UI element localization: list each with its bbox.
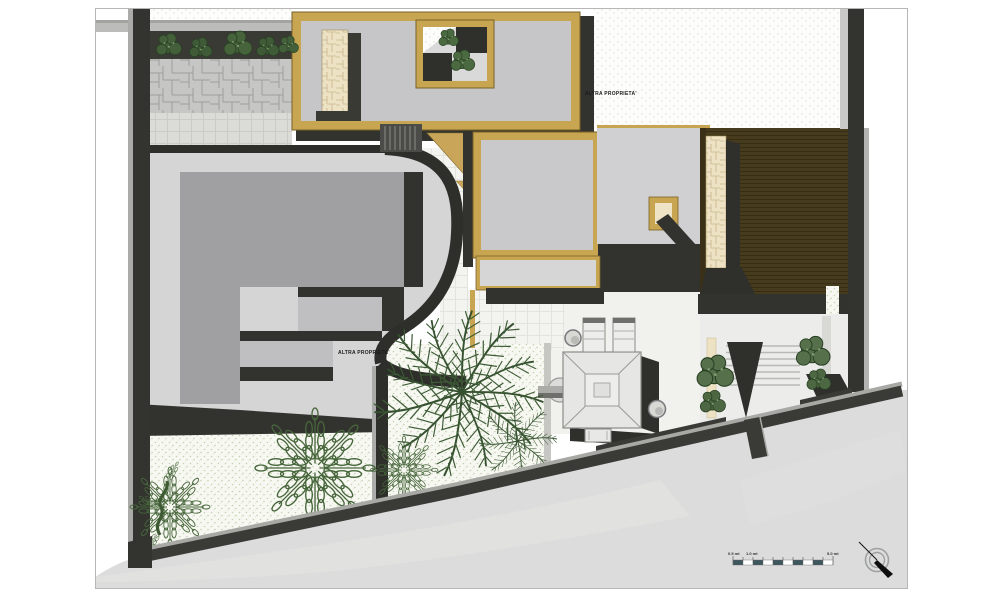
scale-tick-label-second: 1.0 mt: [746, 551, 758, 556]
stone-strip-deck: [706, 136, 726, 268]
flagstone-court: [150, 59, 292, 113]
courtyard-shadow-tr: [456, 27, 487, 53]
scale-tick-label-first: 0.5 mt: [728, 551, 740, 556]
stone-strip-top: [322, 30, 348, 118]
stairs-top-treads: [385, 126, 415, 150]
left-wall-edge: [128, 9, 133, 560]
stone-strip-shadow: [348, 33, 361, 121]
garden-divider-wall: [376, 366, 388, 516]
sun-lounger-2: [613, 318, 635, 352]
building-mid-roof: [481, 140, 593, 250]
scale-tick-label-last: 5.0 mt: [827, 551, 839, 556]
site-plan-canvas: ALTRA PROPRIETA' ALTRA PROPRIETA' 0.5 mt…: [0, 0, 1000, 600]
right-wall: [848, 9, 864, 392]
bench-bar: [538, 386, 564, 393]
paved-strip-top-left: [150, 113, 292, 149]
gravel-strip-top-left: [140, 9, 292, 21]
pavilion-shadow-right: [641, 356, 659, 434]
terrace-mid-floor: [480, 260, 596, 286]
terrace-mid-shadow: [486, 288, 604, 304]
right-wall-outer-edge: [864, 128, 869, 392]
other-property-label-left: ALTRA PROPRIETA': [338, 350, 390, 356]
terrace-side-shadow: [404, 172, 423, 287]
sun-lounger-1: [583, 318, 605, 352]
right-wall-inner-strip: [840, 9, 848, 129]
top-wall-edge: [96, 20, 292, 23]
stone-strip-deck-shadow: [726, 140, 740, 268]
left-wall: [133, 9, 150, 560]
site-plan-drawing: [0, 0, 1000, 600]
garden-divider-edge: [372, 366, 376, 516]
boundary-left: [128, 9, 150, 560]
deck-edge: [700, 128, 706, 296]
building-mid-shadow-left: [463, 131, 473, 267]
terrace-step-shadow: [298, 287, 404, 297]
terrace-step-shadow: [240, 331, 382, 341]
stone-strip-shadow-bottom: [316, 111, 354, 121]
terrace-step-2: [240, 341, 333, 367]
roof-lower-shadow-block: [598, 244, 706, 292]
other-property-label-top: ALTRA PROPRIETA': [585, 91, 637, 97]
building-top-shadow-right: [580, 16, 594, 134]
courtyard-shadow-bl: [423, 53, 452, 81]
stairs-top: [380, 124, 422, 152]
pavilion-roof-apex: [594, 383, 610, 397]
terrace-step-1: [298, 297, 382, 331]
gravel-court-top-right: [594, 9, 848, 129]
top-wall-band: [96, 23, 292, 32]
planter-pot-1-inner: [571, 336, 579, 344]
gravel-pocket: [826, 286, 839, 314]
planter-pot-2-inner: [655, 407, 663, 415]
terrace-step-shadow: [240, 367, 333, 381]
